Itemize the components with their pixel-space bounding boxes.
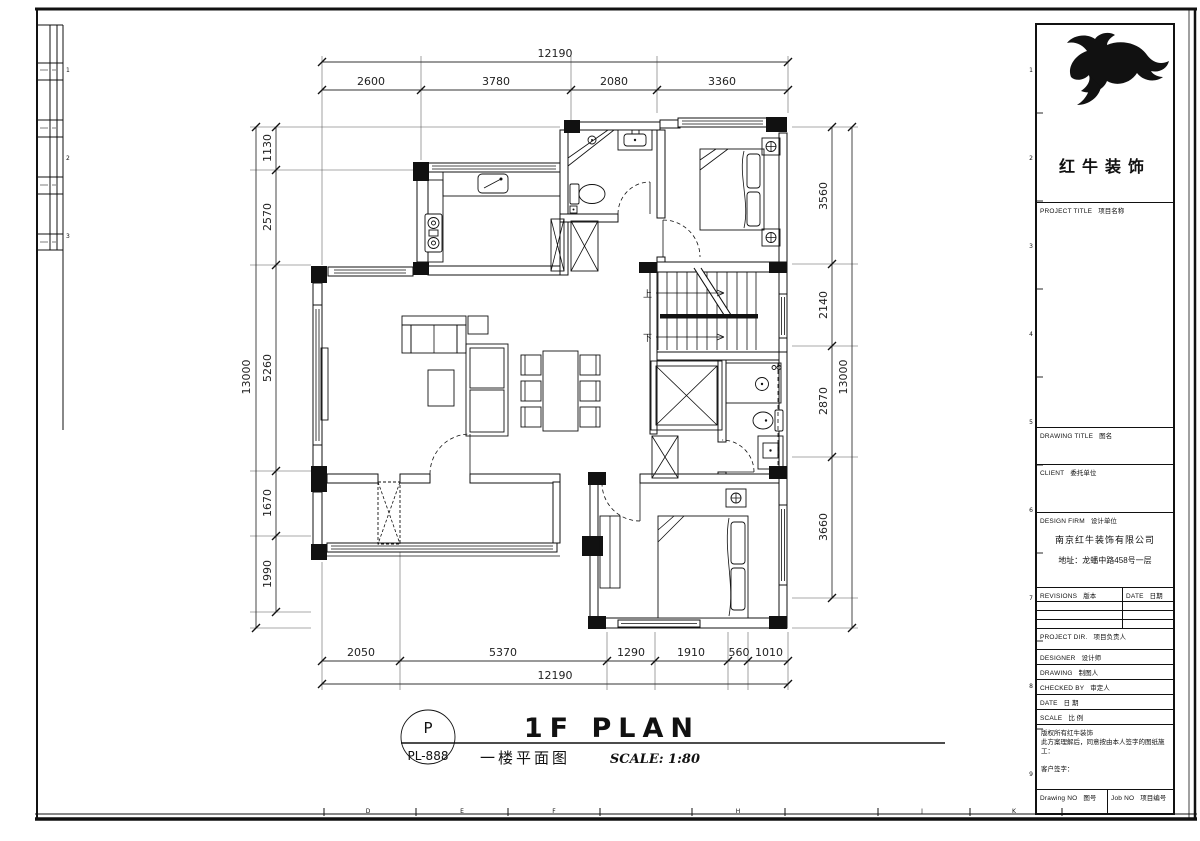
stairs-down-label: 下 <box>643 334 652 344</box>
drawing-scale: SCALE: 1:80 <box>610 752 700 767</box>
dining-set <box>521 351 600 431</box>
nightstand <box>762 229 780 246</box>
date-label-cn: 日 期 <box>1064 697 1079 707</box>
svg-text:1910: 1910 <box>677 646 705 659</box>
svg-text:12190: 12190 <box>538 669 573 682</box>
revisions-label-cn: 版本 <box>1083 590 1096 600</box>
svg-text:F: F <box>552 808 556 815</box>
svg-text:J: J <box>920 808 923 815</box>
client-label-cn: 委托单位 <box>1070 467 1096 477</box>
rednow-logo-icon <box>1037 25 1177 150</box>
rev-date-label-en: DATE <box>1126 593 1144 600</box>
bed <box>700 149 764 230</box>
job-no-label-en: Job NO <box>1111 795 1134 802</box>
svg-text:4: 4 <box>1029 331 1033 338</box>
svg-text:1: 1 <box>1029 67 1033 74</box>
svg-text:6: 6 <box>1029 507 1033 514</box>
revisions-header-row: REVISIONS版本 DATE日期 <box>1037 587 1173 601</box>
svg-text:3780: 3780 <box>482 75 510 88</box>
drawing-title-row: DRAWING TITLE图名 <box>1037 427 1173 464</box>
svg-text:13000: 13000 <box>837 360 850 395</box>
svg-text:13000: 13000 <box>240 360 253 395</box>
agreement-note: 此方案理解后，同意按由本人签字的图纸施工： <box>1041 738 1169 756</box>
drawing-sheet: 1 2 3 D E F H J K 1 2 3 4 5 6 7 8 9 <box>0 0 1200 841</box>
drawing-no-row: Drawing NO图号 Job NO项目编号 <box>1037 789 1173 815</box>
svg-text:2570: 2570 <box>261 203 274 231</box>
svg-text:1: 1 <box>66 67 70 74</box>
svg-text:9: 9 <box>1029 771 1033 778</box>
designer-row: DESIGNER设计师 <box>1037 649 1173 664</box>
stairs-up-label: 上 <box>643 289 652 300</box>
drawing-title-cn: 一楼平面图 <box>480 749 570 767</box>
project-title-row: PROJECT TITLE项目名称 <box>1037 202 1173 427</box>
svg-text:8: 8 <box>1029 683 1033 690</box>
notes-row: 版权所有红牛装饰 此方案理解后，同意按由本人签字的图纸施工： 客户签字： <box>1037 724 1173 789</box>
svg-text:D: D <box>366 808 371 815</box>
grid-numbers-left: 1 2 3 <box>66 67 70 240</box>
project-title-label-cn: 项目名称 <box>1098 205 1124 215</box>
svg-text:5: 5 <box>1029 419 1033 426</box>
svg-text:2140: 2140 <box>817 291 830 319</box>
svg-text:E: E <box>460 808 464 815</box>
dimension-left: 13000 1130 2570 5260 1670 1990 <box>240 123 280 632</box>
checked-by-label-cn: 审定人 <box>1090 682 1110 692</box>
job-no-label-cn: 项目编号 <box>1140 792 1166 802</box>
checked-by-label-en: CHECKED BY <box>1040 685 1084 692</box>
svg-text:1290: 1290 <box>617 646 645 659</box>
revision-row <box>1037 601 1173 610</box>
svg-text:7: 7 <box>1029 595 1033 602</box>
kitchen <box>425 172 560 262</box>
client-label-en: CLIENT <box>1040 470 1064 477</box>
drawing-by-label-en: DRAWING <box>1040 670 1073 677</box>
svg-text:560: 560 <box>729 646 750 659</box>
logo-area: 红牛装饰 <box>1037 25 1173 202</box>
svg-text:5260: 5260 <box>261 354 274 382</box>
project-dir-label-en: PROJECT DIR. <box>1040 634 1087 641</box>
design-firm-row: DESIGN FIRM设计单位 南京红牛装饰有限公司 地址：龙蟠中路458号一层 <box>1037 512 1173 587</box>
svg-text:3360: 3360 <box>708 75 736 88</box>
bathroom-2 <box>726 363 783 470</box>
project-dir-row: PROJECT DIR.项目负责人 <box>1037 628 1173 649</box>
svg-text:2080: 2080 <box>600 75 628 88</box>
drawing-no-label-en: Drawing NO <box>1040 795 1077 802</box>
bathroom-1 <box>568 130 652 213</box>
signature-note: 客户签字： <box>1041 765 1169 774</box>
copyright-note: 版权所有红牛装饰 <box>1041 729 1169 738</box>
svg-text:2870: 2870 <box>817 387 830 415</box>
chaise-sofa <box>466 344 508 436</box>
designer-label-en: DESIGNER <box>1040 655 1076 662</box>
left-registration-strip <box>37 25 63 430</box>
sheet-frame <box>35 9 1197 820</box>
svg-text:2: 2 <box>1029 155 1033 162</box>
bedroom-2 <box>600 489 748 618</box>
drawing-by-label-cn: 制图人 <box>1079 667 1099 677</box>
dimension-bottom: 2050 5370 1290 1910 560 1010 12190 <box>318 646 792 688</box>
date-row: DATE日 期 <box>1037 694 1173 709</box>
coffee-table <box>428 370 454 406</box>
svg-text:3560: 3560 <box>817 182 830 210</box>
scale-label-en: SCALE <box>1040 715 1062 722</box>
date-label-en: DATE <box>1040 700 1058 707</box>
nightstand <box>762 138 780 155</box>
firm-address: 地址：龙蟠中路458号一层 <box>1037 555 1173 566</box>
title-block: 红牛装饰 PROJECT TITLE项目名称 DRAWING TITLE图名 C… <box>1035 23 1175 815</box>
svg-text:12190: 12190 <box>538 47 573 60</box>
designer-label-cn: 设计师 <box>1082 652 1102 662</box>
dimension-right: 3560 2140 2870 3660 13000 <box>817 123 856 632</box>
scale-row: SCALE比 例 <box>1037 709 1173 724</box>
sofa <box>402 316 466 353</box>
project-dir-label-cn: 项目负责人 <box>1093 631 1126 641</box>
grid-numbers-right: 1 2 3 4 5 6 7 8 9 <box>1029 67 1033 778</box>
client-row: CLIENT委托单位 <box>1037 464 1173 512</box>
revisions-label-en: REVISIONS <box>1040 593 1077 600</box>
scale-label-cn: 比 例 <box>1068 712 1083 722</box>
toilet <box>753 410 783 431</box>
revision-row <box>1037 619 1173 628</box>
sheet-number: PL-888 <box>408 749 449 763</box>
svg-text:3660: 3660 <box>817 513 830 541</box>
drawing-by-row: DRAWING制图人 <box>1037 664 1173 679</box>
drawing-title-label-en: DRAWING TITLE <box>1040 433 1093 440</box>
stove <box>425 214 442 252</box>
svg-text:2: 2 <box>66 155 70 162</box>
svg-text:H: H <box>736 808 741 815</box>
dining-table <box>543 351 578 431</box>
svg-text:1670: 1670 <box>261 489 274 517</box>
rev-date-label-cn: 日期 <box>1150 590 1163 600</box>
svg-text:3: 3 <box>1029 243 1033 250</box>
drawing-title-label-cn: 图名 <box>1099 430 1112 440</box>
nightstand <box>726 489 746 507</box>
project-title-label-en: PROJECT TITLE <box>1040 208 1092 215</box>
design-firm-label-cn: 设计单位 <box>1091 515 1117 525</box>
svg-text:2050: 2050 <box>347 646 375 659</box>
bedroom-1 <box>700 138 780 246</box>
firm-name: 南京红牛装饰有限公司 <box>1037 533 1173 546</box>
svg-text:1010: 1010 <box>755 646 783 659</box>
dimension-top: 12190 2600 3780 2080 3360 <box>318 47 792 94</box>
svg-text:5370: 5370 <box>489 646 517 659</box>
checked-by-row: CHECKED BY审定人 <box>1037 679 1173 694</box>
svg-text:1990: 1990 <box>261 560 274 588</box>
living-room <box>321 316 600 436</box>
side-table <box>468 316 488 334</box>
svg-text:2600: 2600 <box>357 75 385 88</box>
bed <box>658 516 748 618</box>
drawing-title-en: 1F PLAN <box>524 713 700 744</box>
revision-row <box>1037 610 1173 619</box>
svg-text:3: 3 <box>66 233 70 240</box>
logo-text: 红牛装饰 <box>1037 153 1173 177</box>
sheet-code-letter: P <box>423 719 432 737</box>
design-firm-label-en: DESIGN FIRM <box>1040 518 1085 525</box>
svg-text:1130: 1130 <box>261 134 274 162</box>
extension-lines <box>250 56 858 690</box>
grid-ticks-bottom <box>324 808 1062 816</box>
drawing-no-label-cn: 图号 <box>1083 792 1096 802</box>
title-bar: P PL-888 1F PLAN 一楼平面图 SCALE: 1:80 <box>401 710 945 767</box>
staircase: 上 下 <box>643 268 758 350</box>
toilet <box>570 184 605 204</box>
floor-plan-drawing: 1 2 3 D E F H J K 1 2 3 4 5 6 7 8 9 <box>0 0 1200 841</box>
